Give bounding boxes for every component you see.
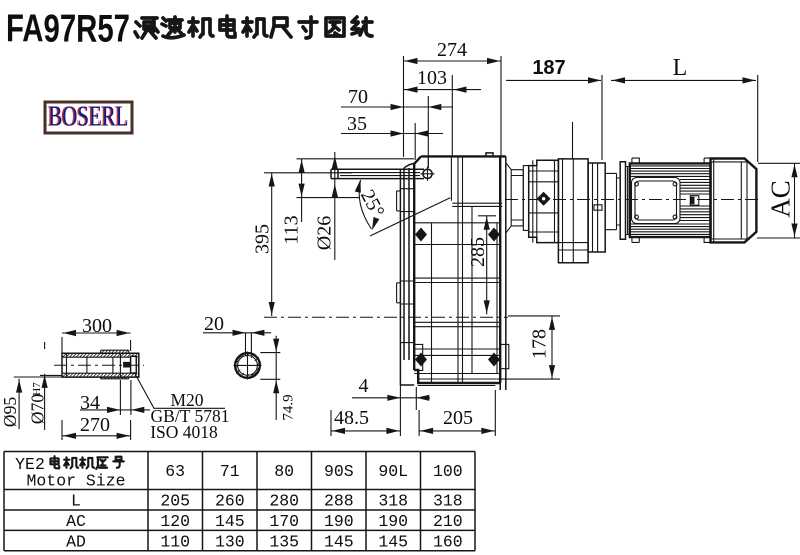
svg-text:288: 288 <box>324 492 354 511</box>
svg-text:280: 280 <box>269 492 299 511</box>
svg-text:103: 103 <box>417 67 447 89</box>
svg-text:ISO 4018: ISO 4018 <box>150 422 218 442</box>
svg-text:20: 20 <box>204 313 224 335</box>
svg-text:178: 178 <box>529 329 551 359</box>
svg-text:190: 190 <box>324 512 354 531</box>
svg-text:113: 113 <box>281 215 303 244</box>
svg-text:170: 170 <box>269 512 299 531</box>
svg-text:90S: 90S <box>324 462 354 481</box>
svg-text:120: 120 <box>160 512 190 531</box>
svg-text:H7: H7 <box>31 382 43 396</box>
svg-text:300: 300 <box>82 315 112 337</box>
svg-text:260: 260 <box>215 492 245 511</box>
svg-text:274: 274 <box>437 39 467 61</box>
svg-text:160: 160 <box>433 532 463 551</box>
svg-text:270: 270 <box>80 414 110 436</box>
svg-text:34: 34 <box>80 392 100 414</box>
svg-text:318: 318 <box>378 492 408 511</box>
svg-text:130: 130 <box>215 532 245 551</box>
svg-text:110: 110 <box>160 532 190 551</box>
svg-text:70: 70 <box>348 86 368 108</box>
svg-text:71: 71 <box>220 462 240 481</box>
svg-text:35: 35 <box>347 113 367 135</box>
svg-text:80: 80 <box>274 462 294 481</box>
svg-text:Motor Size: Motor Size <box>26 472 125 491</box>
svg-text:210: 210 <box>433 512 463 531</box>
svg-text:285: 285 <box>467 237 489 267</box>
svg-text:AC: AC <box>766 180 796 218</box>
svg-text:145: 145 <box>378 532 408 551</box>
svg-text:4: 4 <box>359 375 369 397</box>
svg-text:135: 135 <box>269 532 299 551</box>
svg-text:Ø26: Ø26 <box>314 216 336 250</box>
svg-text:205: 205 <box>443 407 473 429</box>
svg-text:90L: 90L <box>378 462 408 481</box>
svg-text:AC: AC <box>66 512 86 531</box>
svg-text:100: 100 <box>433 462 463 481</box>
svg-text:63: 63 <box>165 462 185 481</box>
svg-text:Ø95: Ø95 <box>0 397 20 427</box>
svg-text:AD: AD <box>66 532 86 551</box>
svg-text:145: 145 <box>215 512 245 531</box>
svg-text:BOSERL: BOSERL <box>49 102 129 133</box>
svg-text:48.5: 48.5 <box>334 407 369 429</box>
svg-text:190: 190 <box>378 512 408 531</box>
svg-text:74.9: 74.9 <box>281 394 297 420</box>
svg-text:395: 395 <box>252 224 274 254</box>
svg-text:187: 187 <box>532 57 565 79</box>
svg-text:318: 318 <box>433 492 463 511</box>
svg-text:FA97R57: FA97R57 <box>6 8 130 51</box>
svg-text:L: L <box>673 55 688 81</box>
svg-text:145: 145 <box>324 532 354 551</box>
svg-text:L: L <box>71 492 81 511</box>
svg-text:205: 205 <box>160 492 190 511</box>
